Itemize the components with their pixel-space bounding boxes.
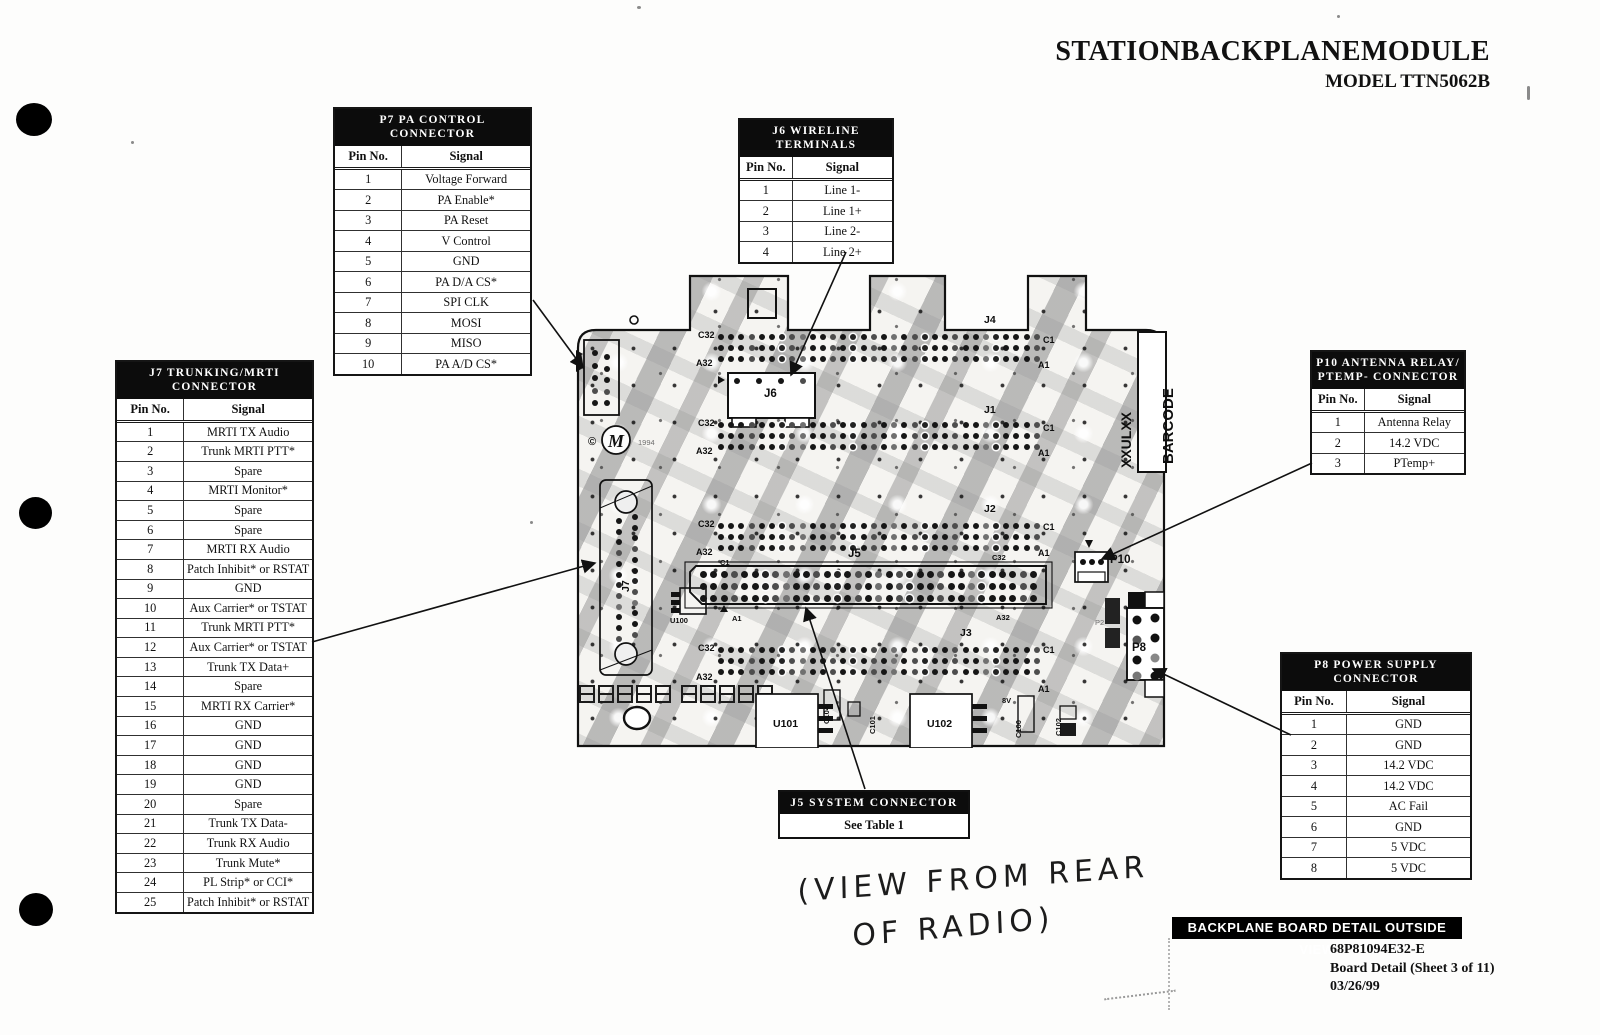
pad-dot [741,595,748,602]
pad-dot [779,334,785,340]
pad-dot [922,433,928,439]
pad-dot [604,354,610,360]
pad-dot [718,422,724,428]
pad-dot [932,422,938,428]
pad-dot [710,571,717,578]
pad-dot [1013,669,1019,675]
pad-dot [881,433,887,439]
pad-dot [759,534,765,540]
pad-dot [901,444,907,450]
board-label-a32: A32 [696,446,713,456]
table-row: 17GND [117,736,312,756]
pad-dot [738,523,744,529]
pad-dot [820,545,826,551]
pad-dot [1034,433,1040,439]
pad-dot [800,669,806,675]
table-row: 23Trunk Mute* [117,853,312,873]
table-row: 14Spare [117,677,312,697]
pad-dot [769,444,775,450]
pad-dot [632,546,638,552]
pad-dot [779,534,785,540]
pad-dot [871,545,877,551]
board-label-p2: P2 [1095,618,1104,627]
cell-pin: 3 [117,461,184,481]
pad-dot [592,388,598,394]
pad-dot [632,610,638,616]
j7-hole-top [615,491,637,513]
cell-pin: 16 [117,716,184,736]
board-label-j2: J2 [984,503,996,515]
cell-signal: GND [184,579,312,599]
board-label-copyright: © [588,436,596,448]
cell-signal: Antenna Relay [1364,411,1464,433]
pad-dot [820,523,826,529]
pad-dot [728,669,734,675]
cell-signal: PL Strip* or CCI* [184,873,312,893]
pad-dot [886,571,893,578]
pad-dot [850,433,856,439]
pad-dot [840,345,846,351]
pad-dot [942,658,948,664]
pad-dot [632,632,638,638]
pad-dot [779,444,785,450]
pad-dot [721,571,728,578]
pad-dot [871,647,877,653]
j1-pad-row [718,433,1040,439]
triangle-marker [576,350,583,358]
pad-dot [989,571,996,578]
pad-dot [759,658,765,664]
pad-dot [789,444,795,450]
board-label-c1: C1 [1043,335,1055,345]
pad-dot [752,571,759,578]
pad-dot [616,518,622,524]
pad-dot [952,356,958,362]
pad-dot [749,444,755,450]
u100-pin [671,592,680,597]
cell-pin: 11 [117,618,184,638]
pad-dot [1003,356,1009,362]
pad-dot [741,571,748,578]
table-row: 13Trunk TX Data+ [117,657,312,677]
pad-dot [738,422,744,428]
cell-signal: GND [184,716,312,736]
j7-pin-col [632,514,638,638]
pad-dot [738,647,744,653]
col-pin-no: Pin No. [117,399,184,422]
pad-dot [749,523,755,529]
table-row: 1Antenna Relay [1312,411,1464,433]
pad-dot [973,422,979,428]
pad-dot [942,356,948,362]
pad-dot [840,433,846,439]
p2-component [1105,598,1120,624]
pad-dot [830,356,836,362]
pad-dot [952,647,958,653]
cell-pin: 6 [117,520,184,540]
board-label-c32: C32 [698,418,715,428]
cell-pin: 25 [117,893,184,912]
table-row: 4V Control [335,231,530,252]
pad-dot [718,669,724,675]
pad-dot [993,334,999,340]
pad-dot [789,545,795,551]
pad-dot [932,647,938,653]
table-body: 1GND2GND314.2 VDC414.2 VDC5AC Fail6GND75… [1282,713,1470,878]
cell-pin: 3 [1312,453,1364,473]
pad-dot [810,534,816,540]
pad-dot [731,583,738,590]
cell-pin: 3 [335,210,402,231]
j3-pad-row [718,669,1040,675]
pad-dot [871,345,877,351]
pad-dot [983,422,989,428]
board-label-a32: A32 [996,613,1010,622]
pad-dot [983,534,989,540]
scan-speck [530,521,533,524]
pad-dot [718,647,724,653]
p8-tab [1145,680,1164,697]
pad-dot [759,334,765,340]
pad-dot [810,545,816,551]
board-label-u102: U102 [927,718,952,730]
pad-dot [762,583,769,590]
cell-pin: 20 [117,795,184,815]
pad-dot [1003,433,1009,439]
cell-pin: 15 [117,697,184,717]
pad-dot [632,568,638,574]
pad-dot [932,433,938,439]
pad-dot [604,389,610,395]
pad-dot [749,345,755,351]
table-row: 1Line 1- [740,179,892,201]
pad-dot [983,444,989,450]
pad-dot [901,647,907,653]
table-row: 8MOSI [335,313,530,334]
pad-dot [1013,658,1019,664]
cell-signal: 5 VDC [1346,858,1470,878]
col-signal: Signal [402,146,530,169]
cell-signal: PA Reset [402,210,530,231]
table-p10-antenna-relay-connector: P10 ANTENNA RELAY/ PTEMP- CONNECTOR Pin … [1310,350,1466,475]
pad-dot [968,595,975,602]
pad-dot [912,444,918,450]
cell-signal: Spare [184,501,312,521]
arrow-p8 [1153,669,1291,735]
pad-dot [810,444,816,450]
pad-dot [922,545,928,551]
cell-signal: GND [184,775,312,795]
pad-dot [769,422,775,428]
table-row: 25Patch Inhibit* or RSTAT [117,893,312,912]
table-p7-pa-control-connector: P7 PA CONTROL CONNECTOR Pin No. Signal 1… [333,107,532,376]
pad-dot [749,545,755,551]
table-row: 4MRTI Monitor* [117,481,312,501]
pad-dot [942,523,948,529]
p8-tab [1145,592,1164,608]
pad-dot [830,334,836,340]
cell-signal: Trunk Mute* [184,853,312,873]
u100-pin [671,600,680,605]
pad-dot [973,345,979,351]
j5-system-connector-label: J5 SYSTEM CONNECTOR See Table 1 [778,790,970,839]
pad-dot [901,422,907,428]
cell-signal: Line 1+ [792,201,892,222]
pad-dot [632,514,638,520]
pad-dot [803,595,810,602]
pad-dot [1013,345,1019,351]
pad-dot [871,658,877,664]
pad-dot [616,593,622,599]
pad-dot [993,345,999,351]
pad-dot [800,647,806,653]
pad-dot [772,583,779,590]
cell-pin: 13 [117,657,184,677]
cell-pin: 8 [117,559,184,579]
pad-dot [881,345,887,351]
pad-dot [983,334,989,340]
pad-dot [840,658,846,664]
pad-dot [891,658,897,664]
pad-dot [963,356,969,362]
table-row: 7MRTI RX Audio [117,540,312,560]
pad-dot [1009,571,1016,578]
pad-dot [932,356,938,362]
j2-pad-row [718,523,1040,529]
pad-dot [850,658,856,664]
cell-signal: Line 2- [792,221,892,242]
pad-dot [741,583,748,590]
scanned-manual-page: STATIONBACKPLANEMODULE MODEL TTN5062B P7… [0,0,1600,1035]
pad-dot [963,669,969,675]
pad-dot [958,571,965,578]
pad-dot [917,595,924,602]
pad-dot [810,647,816,653]
pad-dot [769,356,775,362]
pad-dot [1003,345,1009,351]
pad-dot [820,658,826,664]
cell-pin: 2 [117,442,184,462]
pad-dot [779,647,785,653]
board-label-c101: C101 [868,716,877,734]
cell-pin: 5 [335,251,402,272]
pad-dot [779,658,785,664]
pad-dot [789,523,795,529]
pad-dot [759,444,765,450]
cell-pin: 3 [740,221,792,242]
pad-dot [942,444,948,450]
pad-dot [875,583,882,590]
pad-dot [881,444,887,450]
pad-dot [1013,545,1019,551]
pad-dot [948,571,955,578]
cell-signal: SPI CLK [402,292,530,313]
pad-dot [855,595,862,602]
pad-dot [861,345,867,351]
pad-dot [963,545,969,551]
cell-pin: 4 [335,231,402,252]
col-signal: Signal [184,399,312,422]
pad-dot [769,545,775,551]
pad-dot [830,433,836,439]
scan-speck [131,141,134,144]
pad-dot [850,523,856,529]
footer-sheet-info: Board Detail (Sheet 3 of 11) [1330,960,1494,979]
table-row: 1MRTI TX Audio [117,421,312,442]
pad-dot [932,669,938,675]
cell-pin: 4 [1282,776,1346,797]
pad-dot [871,433,877,439]
pad-dot [749,422,755,428]
pad-dot [983,669,989,675]
pad-dot [800,433,806,439]
cell-signal: Spare [184,677,312,697]
cell-pin: 12 [117,638,184,658]
table-body: 1Line 1-2Line 1+3Line 2-4Line 2+ [740,179,892,262]
cell-pin: 8 [1282,858,1346,878]
pad-dot [855,583,862,590]
pad-dot [983,545,989,551]
table-header-row: Pin No. Signal [335,146,530,169]
pad-dot [932,658,938,664]
pad-dot [932,334,938,340]
col-pin-no: Pin No. [335,146,402,169]
table-row: 1Voltage Forward [335,168,530,190]
pad-dot [632,535,638,541]
pad-dot [1020,583,1027,590]
pad-dot [922,523,928,529]
pad-dot [901,669,907,675]
pad-dot [616,529,622,535]
pad-dot [738,334,744,340]
pad-dot [850,534,856,540]
pad-dot [958,595,965,602]
cell-pin: 3 [1282,755,1346,776]
board-label-c1: C1 [1043,522,1055,532]
table-row: 10Aux Carrier* or TSTAT [117,599,312,619]
pad-dot [983,433,989,439]
board-label-c1: C1 [1043,645,1055,655]
pad-dot [948,583,955,590]
cell-signal: MRTI TX Audio [184,421,312,442]
pad-dot [999,595,1006,602]
table-j7-trunking-mrti-connector: J7 TRUNKING/MRTI CONNECTOR Pin No. Signa… [115,360,314,914]
table-row: 3PA Reset [335,210,530,231]
pad-dot [861,669,867,675]
table-row: 10PA A/D CS* [335,354,530,374]
pad-dot [891,669,897,675]
pad-dot [855,571,862,578]
j3-pad-row [718,658,1040,664]
table-row: 6PA D/A CS* [335,272,530,293]
pad-dot [728,356,734,362]
pad-dot [993,669,999,675]
pad-dot [927,583,934,590]
pad-dot [718,545,724,551]
pad-dot [963,334,969,340]
pad-dot [830,444,836,450]
pad-dot [850,669,856,675]
table-row: 8Patch Inhibit* or RSTAT [117,559,312,579]
pad-dot [738,658,744,664]
pad-dot [721,583,728,590]
pad-dot [942,433,948,439]
table-row: 6GND [1282,817,1470,838]
pad-dot [824,571,831,578]
pad-dot [1024,422,1030,428]
pad-dot [749,334,755,340]
pad-dot [901,534,907,540]
table-header-row: Pin No. Signal [117,399,312,422]
pad-dot [718,345,724,351]
table-title-line2: PTEMP- CONNECTOR [1314,370,1462,384]
pad-dot [793,583,800,590]
pad-dot [906,583,913,590]
handwritten-note-line1: (VIEW FROM REAR [797,850,1149,910]
scan-speck [637,6,641,9]
pad-dot [728,658,734,664]
table-row: 85 VDC [1282,858,1470,878]
pad-dot [922,444,928,450]
title-block: STATIONBACKPLANEMODULE MODEL TTN5062B [900,36,1490,93]
pad-dot [922,345,928,351]
board-label-c104: C104 [822,706,831,724]
scan-dotted-mark [1168,938,1170,1010]
cell-pin: 1 [740,179,792,201]
cell-signal: Spare [184,795,312,815]
cell-signal: GND [184,736,312,756]
col-signal: Signal [1364,389,1464,412]
pad-dot [983,647,989,653]
pad-dot [952,433,958,439]
pad-dot [731,595,738,602]
pad-dot [1034,422,1040,428]
pad-dot [718,523,724,529]
pad-dot [779,345,785,351]
pad-dot [830,422,836,428]
cell-signal: Aux Carrier* or TSTAT [184,638,312,658]
pad-dot [700,571,707,578]
table-row: 22Trunk RX Audio [117,834,312,854]
pad-dot [604,366,610,372]
board-label-p8: P8 [1132,642,1146,654]
pad-dot [1024,545,1030,551]
pad-dot [800,523,806,529]
triangle-marker [1085,540,1093,548]
pad-dot [861,334,867,340]
pad-dot [749,356,755,362]
cell-pin: 21 [117,814,184,834]
pad-dot [1034,523,1040,529]
pad-dot [789,669,795,675]
board-label-a32: A32 [696,547,713,557]
pad-dot [881,658,887,664]
pad-dot [592,363,598,369]
pad-dot [952,523,958,529]
cell-signal: GND [1346,735,1470,756]
board-label-j3: J3 [960,627,972,639]
pad-dot [1034,534,1040,540]
cell-signal: 14.2 VDC [1346,776,1470,797]
pad-dot [1024,658,1030,664]
pad-dot [728,433,734,439]
pad-dot [752,595,759,602]
pad-dot [592,400,598,406]
cell-signal: Trunk RX Audio [184,834,312,854]
cell-signal: Spare [184,520,312,540]
pad-dot [1013,422,1019,428]
pad-dot [983,345,989,351]
